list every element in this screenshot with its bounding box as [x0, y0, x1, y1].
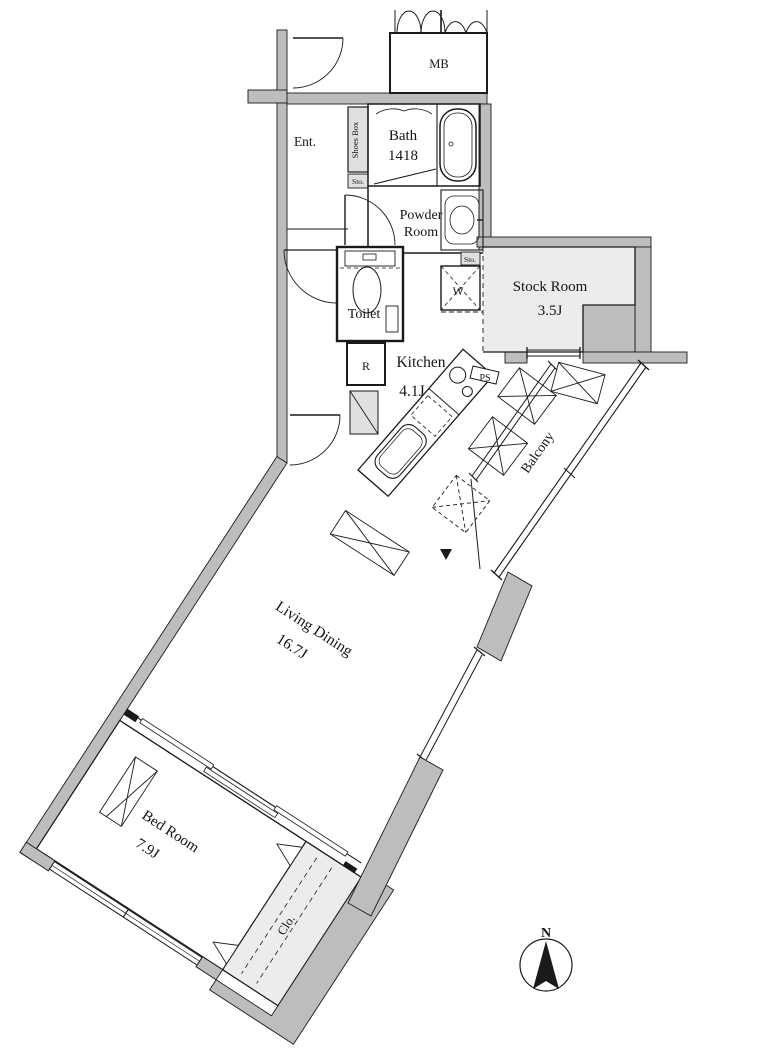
rotated-wing: Clo. Living Dining 16.7J Bed Room 7.9J [13, 456, 557, 1044]
shoes-box: Shoes Box Sto. [348, 107, 368, 188]
balcony-box-dashed-icon [432, 475, 490, 532]
bed-room-size: 7.9J [132, 836, 161, 863]
stock-room-label: Stock Room [513, 279, 588, 295]
entrance-label: Ent. [294, 134, 316, 149]
kitchen-label: Kitchen [396, 354, 445, 371]
meter-box-label: MB [429, 57, 448, 71]
direction-marker-icon [440, 549, 452, 560]
balcony-railing-icon [491, 360, 649, 580]
wall-pillar [477, 572, 532, 661]
compass-needle-icon [533, 941, 559, 989]
kitchen-zone: R Kitchen 4.1J PS [347, 343, 499, 496]
bedroom-south-window [20, 842, 223, 980]
vanity-sink-icon [441, 190, 483, 250]
wall [287, 93, 487, 104]
floor-plan-page: MB Ent. Shoes Box Sto. Bath 1418 Powder … [0, 0, 767, 1048]
meter-box: MB [390, 10, 487, 93]
pipe-space-label: PS [479, 373, 490, 384]
toilet-room: Toilet [284, 247, 403, 341]
washer-label: W [453, 286, 464, 298]
entrance: Ent. [287, 38, 348, 229]
bath-room: Bath 1418 [368, 104, 480, 186]
wall [635, 247, 651, 357]
balcony-box-icon [551, 362, 605, 403]
bath-label: Bath [389, 128, 418, 144]
compass-north-label: N [541, 926, 551, 941]
wall-hallway-left [277, 103, 287, 463]
wall [477, 237, 651, 247]
east-facade [348, 361, 557, 916]
wall [583, 352, 687, 363]
wall [248, 90, 287, 103]
shoes-box-label: Shoes Box [350, 121, 360, 158]
hall-door-arc-icon [290, 415, 340, 465]
entrance-door-icon [293, 38, 343, 88]
wall [479, 104, 491, 250]
wall-stockroom-notch [583, 305, 635, 352]
floor-plan-drawing: MB Ent. Shoes Box Sto. Bath 1418 Powder … [0, 0, 767, 1048]
storage-upper-label: Sto. [352, 177, 364, 186]
toilet-label: Toilet [348, 307, 381, 322]
powder-room-label-2: Room [404, 225, 438, 240]
refrigerator-label: R [362, 359, 370, 373]
washer-space: W [441, 266, 483, 312]
wall-pillar [348, 757, 443, 916]
bath-size: 1418 [388, 148, 418, 164]
storage-lower-label: Sto. [464, 255, 476, 264]
balcony-box-icon [498, 368, 556, 424]
powder-door-icon [345, 195, 395, 245]
meter-box-doors-icon [397, 11, 487, 33]
ld-furniture-icon [330, 511, 409, 576]
balcony-label: Balcony [519, 430, 558, 477]
stock-room-size: 3.5J [538, 303, 563, 319]
wall [505, 352, 527, 363]
hall-door [290, 415, 340, 465]
compass: N [520, 926, 572, 991]
toilet-door-icon [284, 250, 337, 303]
powder-room-label-1: Powder [400, 208, 443, 223]
living-dining-size: 16.7J [273, 631, 310, 663]
